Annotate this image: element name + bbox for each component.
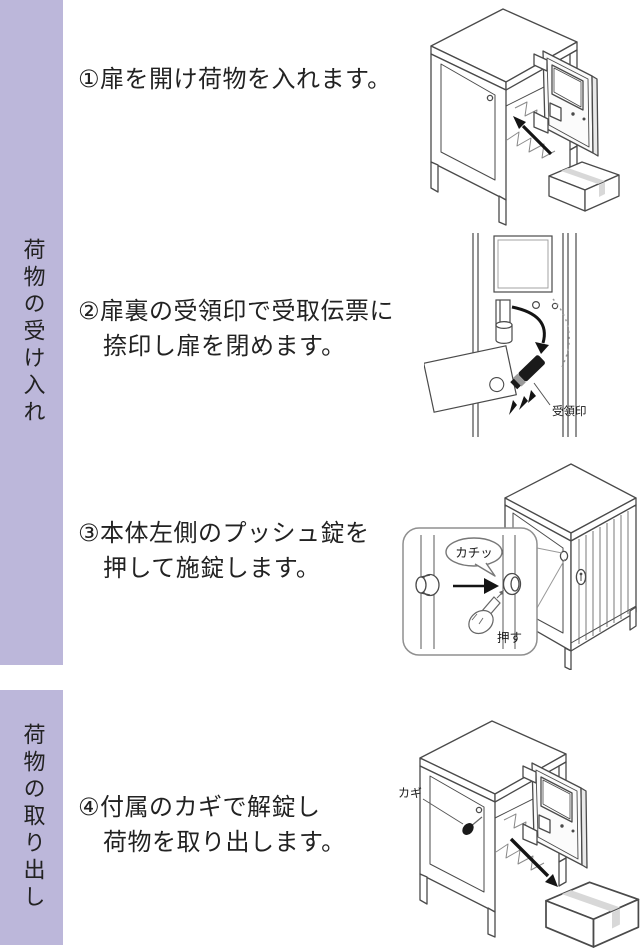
step-1-line-1: ①扉を開け荷物を入れます。 xyxy=(78,62,392,97)
parcel-box xyxy=(546,882,638,947)
receipt-slip xyxy=(424,346,516,412)
section-banner-receiving: 荷物の受け入れ xyxy=(0,0,63,665)
push-label: 押す xyxy=(497,630,522,645)
stamp-swing-arrow xyxy=(512,307,549,354)
lock-before xyxy=(416,575,439,596)
click-sound-label: カチッ xyxy=(455,545,493,560)
section-banner-takeout: 荷物の取り出し xyxy=(0,690,63,945)
rotation-guide-arc xyxy=(553,299,569,367)
illustration-step1-insert-parcel xyxy=(403,2,635,228)
section-banner-receiving-label: 荷物の受け入れ xyxy=(21,238,43,427)
step-4-instruction: ④付属のカギで解錠し 荷物を取り出します。 xyxy=(78,790,346,860)
step-3-line-2: 押して施錠します。 xyxy=(78,551,370,586)
step-2-line-2: 捺印し扉を閉めます。 xyxy=(78,329,394,364)
step-3-instruction: ③本体左側のプッシュ錠を 押して施錠します。 xyxy=(78,516,370,586)
parcel-box xyxy=(549,162,619,211)
step-4-line-1: ④付属のカギで解錠し xyxy=(78,790,346,825)
step-2-line-1: ②扉裏の受領印で受取伝票に xyxy=(78,294,394,329)
illustration-step3-push-lock: カチッ 押す xyxy=(393,456,640,670)
step-1-instruction: ①扉を開け荷物を入れます。 xyxy=(78,62,392,97)
step-3-line-1: ③本体左側のプッシュ錠を xyxy=(78,516,370,551)
receipt-stamp xyxy=(510,354,546,390)
section-banner-takeout-label: 荷物の取り出し xyxy=(21,723,43,912)
illustration-step4-remove-parcel: カギ xyxy=(390,710,640,948)
stamp-label-leader xyxy=(534,383,550,405)
receipt-stamp-label: 受領印 xyxy=(552,404,587,418)
illustration-step2-stamp-receipt: 受領印 xyxy=(424,233,636,437)
key-label: カギ xyxy=(398,786,422,800)
step-2-instruction: ②扉裏の受領印で受取伝票に 捺印し扉を閉めます。 xyxy=(78,294,394,364)
lock-after xyxy=(504,574,521,595)
push-lock-callout: カチッ 押す xyxy=(403,528,537,655)
step-4-line-2: 荷物を取り出します。 xyxy=(78,825,346,860)
